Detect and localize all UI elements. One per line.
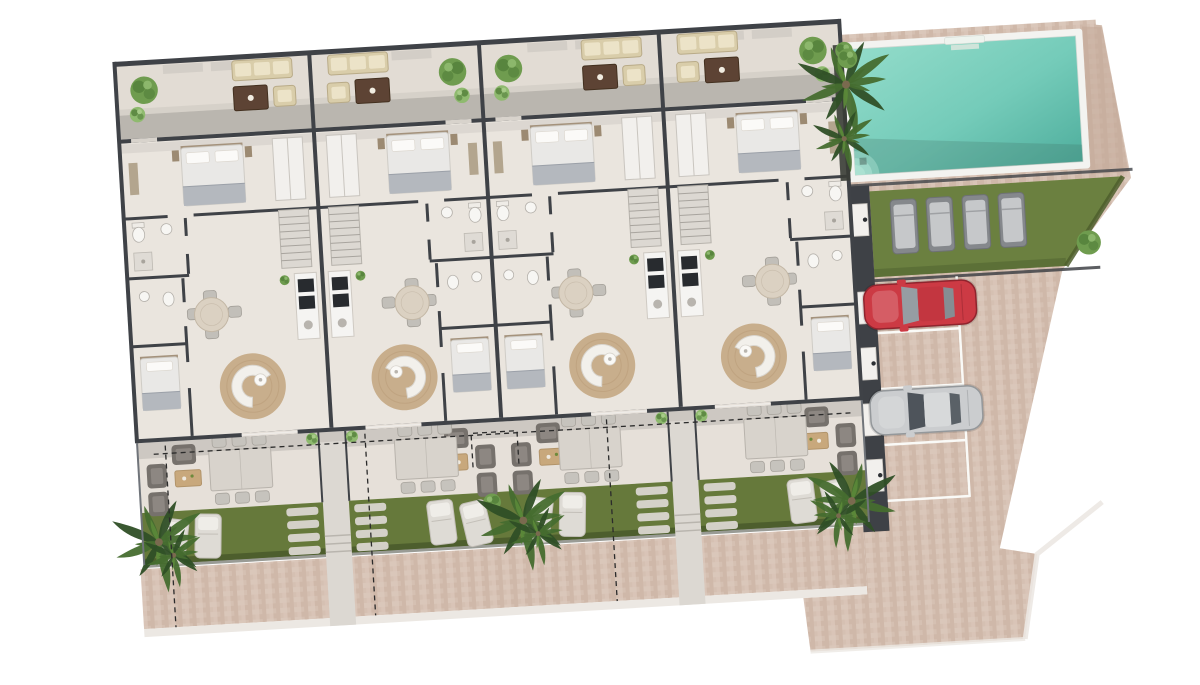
kitchen bbox=[678, 250, 704, 317]
garden-lounger bbox=[559, 492, 585, 536]
silver-car bbox=[867, 381, 986, 440]
kitchen bbox=[644, 252, 670, 319]
kitchen bbox=[328, 270, 354, 337]
bed bbox=[450, 336, 491, 392]
staircase bbox=[278, 209, 311, 269]
garden-lounger bbox=[786, 477, 817, 524]
lawn-lounger bbox=[998, 192, 1027, 247]
garden-lounger bbox=[426, 499, 457, 546]
bed bbox=[171, 142, 254, 207]
garden-lounger bbox=[195, 514, 221, 558]
bed bbox=[140, 355, 181, 411]
bed bbox=[811, 315, 852, 371]
bed bbox=[377, 130, 460, 195]
kitchen bbox=[294, 272, 320, 339]
site-plan-render bbox=[86, 0, 1200, 685]
bed bbox=[521, 121, 604, 186]
staircase bbox=[328, 206, 361, 266]
dining-table-six bbox=[743, 402, 809, 474]
lawn-lounger bbox=[962, 194, 991, 249]
dining-table-six bbox=[557, 413, 623, 485]
staircase bbox=[628, 188, 661, 248]
staircase bbox=[678, 185, 711, 245]
sunbathing-lawn bbox=[843, 176, 1128, 283]
lawn-lounger bbox=[890, 199, 919, 254]
bed bbox=[504, 333, 545, 389]
site-plan-canvas: Residential development site plan, top-d… bbox=[0, 0, 1200, 685]
dining-table-six bbox=[208, 433, 274, 505]
lawn-lounger bbox=[926, 196, 955, 251]
site-plan bbox=[86, 0, 1200, 685]
dining-table-six bbox=[393, 422, 459, 494]
red-car bbox=[861, 275, 980, 334]
bed bbox=[727, 109, 810, 174]
